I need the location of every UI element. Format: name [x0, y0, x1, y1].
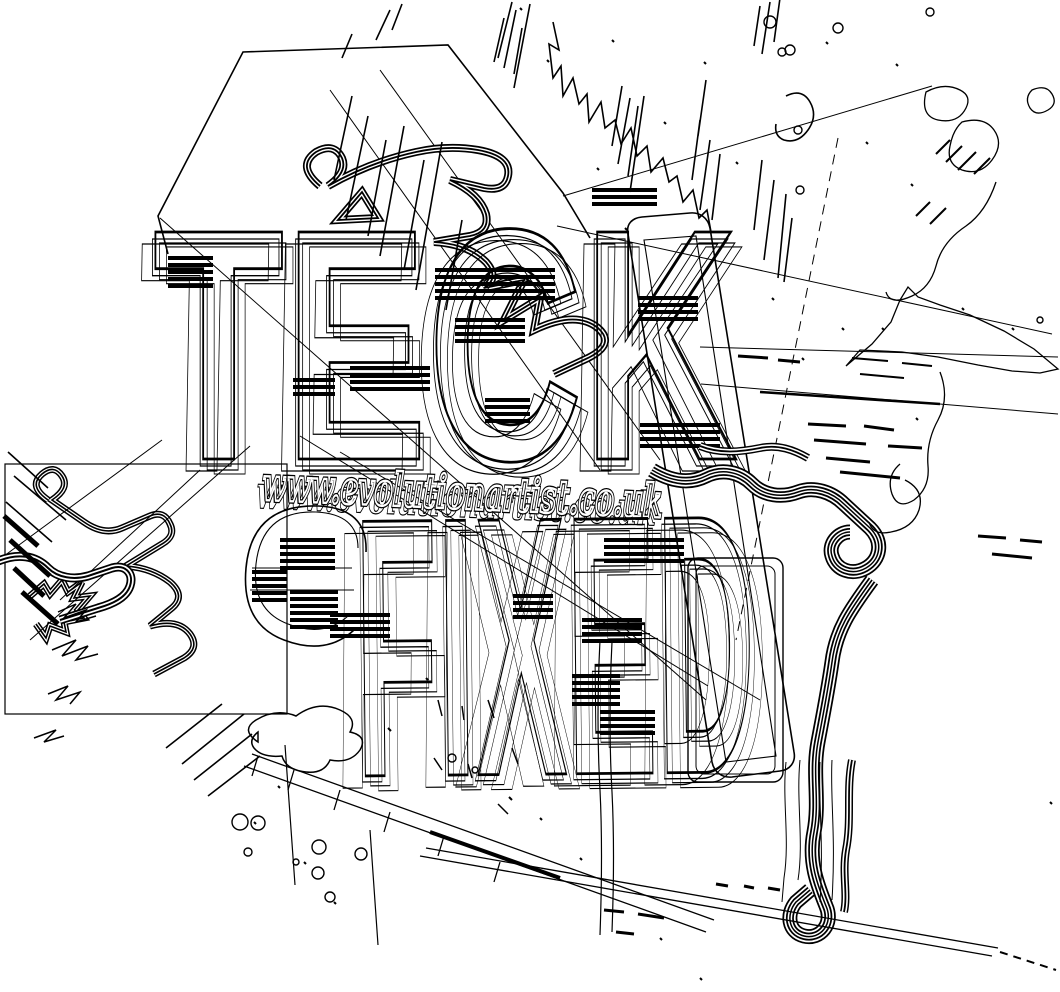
coastline-islands	[846, 86, 1058, 532]
artwork-canvas: TECK FIXED www.evolutionartist.co.uk	[0, 0, 1060, 992]
